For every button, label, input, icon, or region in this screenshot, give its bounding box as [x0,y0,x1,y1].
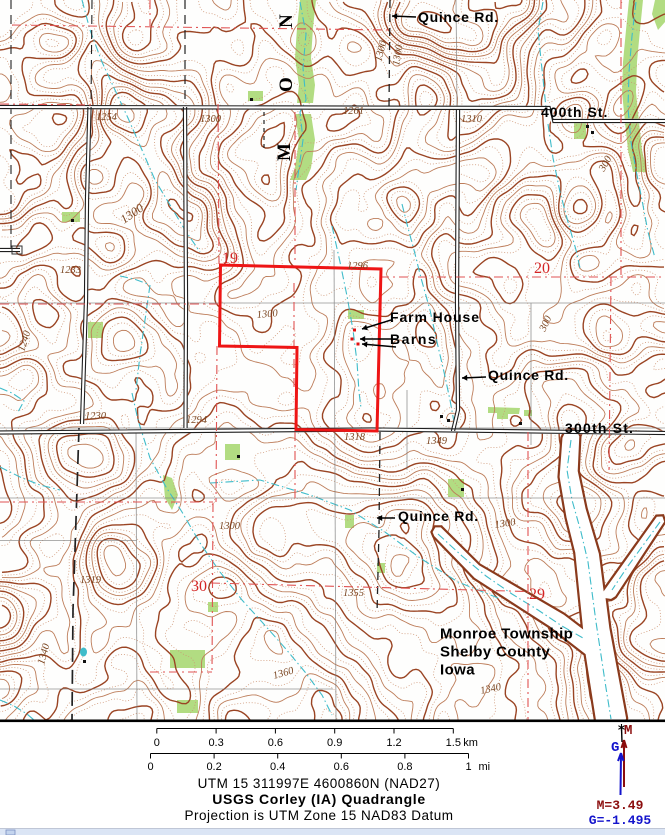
svg-text:0.8: 0.8 [397,761,412,773]
svg-text:300th St.: 300th St. [565,420,634,436]
svg-text:0.6: 0.6 [268,737,283,749]
svg-text:Projection is UTM Zone 15 NAD8: Projection is UTM Zone 15 NAD83 Datum [184,808,453,823]
svg-text:UTM 15 311997E 4600860N (NAD27: UTM 15 311997E 4600860N (NAD27) [198,776,441,791]
svg-text:30: 30 [191,578,207,595]
svg-text:1.2: 1.2 [386,737,401,749]
svg-text:29: 29 [529,586,545,603]
svg-text:1230: 1230 [85,411,107,422]
svg-text:M=3.49: M=3.49 [597,798,644,813]
svg-text:0.2: 0.2 [206,761,221,773]
svg-text:1: 1 [465,761,471,773]
svg-text:1300: 1300 [200,114,222,125]
svg-text:1300: 1300 [219,521,241,532]
svg-text:USGS Corley (IA) Quadrangle: USGS Corley (IA) Quadrangle [212,791,426,807]
svg-text:Barns: Barns [390,331,437,347]
svg-text:O: O [276,77,297,92]
svg-text:1254: 1254 [96,112,118,123]
svg-text:Farm House: Farm House [390,309,480,325]
svg-text:mi: mi [479,761,491,773]
svg-text:1355: 1355 [343,588,364,599]
svg-text:1261: 1261 [343,106,364,117]
svg-text:Quince Rd.: Quince Rd. [418,9,499,25]
svg-text:0.3: 0.3 [208,737,223,749]
svg-text:1318: 1318 [344,432,366,443]
svg-text:0.9: 0.9 [327,737,342,749]
svg-text:1233: 1233 [60,265,81,276]
svg-text:0.4: 0.4 [270,761,285,773]
svg-text:1310: 1310 [461,114,483,125]
svg-text:1294: 1294 [186,415,208,426]
svg-text:0.6: 0.6 [334,761,349,773]
svg-text:1319: 1319 [80,575,102,586]
svg-text:km: km [463,737,478,749]
svg-text:M: M [624,723,632,739]
svg-text:19: 19 [222,250,238,267]
svg-text:G=-1.495: G=-1.495 [589,813,652,828]
svg-text:M: M [274,143,295,161]
svg-text:0: 0 [147,761,153,773]
svg-text:1300: 1300 [256,308,279,321]
svg-text:Quince Rd.: Quince Rd. [398,508,479,524]
svg-text:Shelby County: Shelby County [440,644,550,661]
svg-text:Quince Rd.: Quince Rd. [488,367,569,383]
svg-text:1296: 1296 [347,261,369,272]
svg-text:Monroe Township: Monroe Township [440,626,573,643]
svg-text:20: 20 [534,260,550,277]
svg-text:G: G [611,740,619,756]
svg-text:400th St.: 400th St. [541,104,608,120]
svg-text:N: N [276,14,297,28]
svg-text:0: 0 [154,737,160,749]
svg-text:1.5: 1.5 [446,737,461,749]
svg-text:1349: 1349 [426,436,448,447]
svg-text:Iowa: Iowa [440,662,475,679]
